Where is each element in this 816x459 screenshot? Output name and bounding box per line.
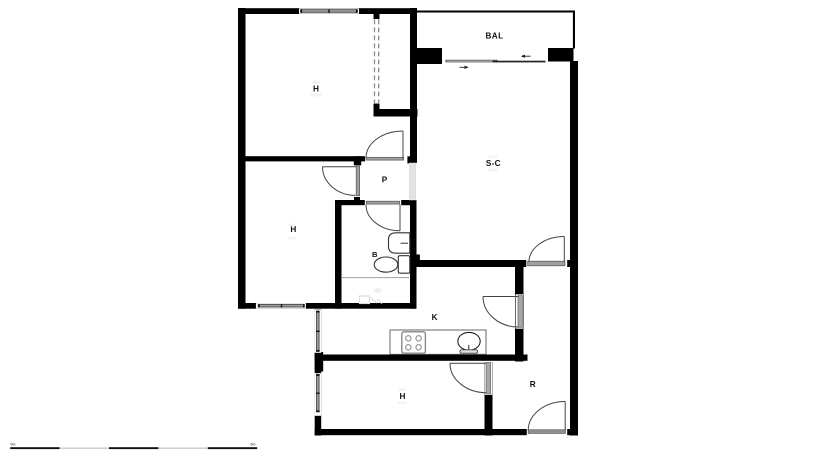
svg-text:K: K xyxy=(432,313,438,322)
svg-text:S-C: S-C xyxy=(486,159,501,168)
svg-text:P: P xyxy=(382,176,388,185)
svg-text:0m: 0m xyxy=(11,443,16,447)
svg-text:R: R xyxy=(530,380,536,389)
svg-text:H: H xyxy=(399,392,405,401)
svg-text:BAL: BAL xyxy=(485,31,503,40)
svg-text:5m: 5m xyxy=(251,443,256,447)
svg-text:B: B xyxy=(372,250,378,259)
svg-text:H: H xyxy=(313,84,319,93)
